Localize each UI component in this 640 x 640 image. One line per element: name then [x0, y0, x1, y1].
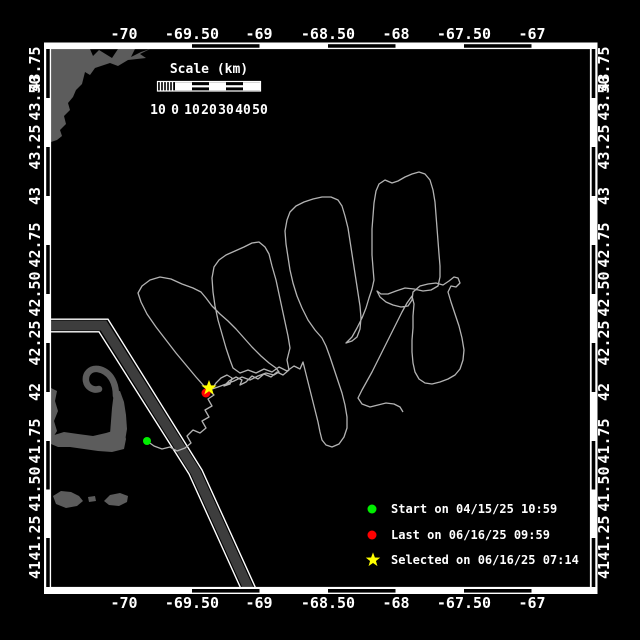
lat-label-right: 42: [595, 383, 613, 401]
lat-label-left: 42.50: [26, 271, 44, 316]
lat-label-left: 43.50: [26, 75, 44, 120]
shipping-lane: [51, 319, 257, 591]
lon-label-top: -69: [245, 25, 272, 43]
lon-label-bottom: -69: [245, 594, 272, 612]
landmass-mainland-strip: [51, 388, 58, 439]
lat-label-left: 43.25: [26, 124, 44, 169]
lon-label-top: -67: [518, 25, 545, 43]
lat-label-left: 42.25: [26, 320, 44, 365]
legend-selected-label: Selected on 06/16/25 07:14: [391, 553, 579, 567]
legend-selected-star-icon: [366, 552, 380, 566]
scale-tick-label: 0: [171, 103, 179, 118]
scale-bar-title: Scale (km): [170, 62, 248, 77]
lat-label-right: 43: [595, 187, 613, 205]
lat-label-left: 41.25: [26, 515, 44, 560]
tracking-map-window: -70 -69.50 -69 -68.50 -68 -67.50 -67 -70…: [0, 0, 640, 640]
lat-label-left: 41.75: [26, 418, 44, 463]
legend-start-dot: [368, 505, 377, 514]
lon-label-bottom: -67.50: [437, 594, 491, 612]
lat-label-left: 42.75: [26, 222, 44, 267]
legend-last-label: Last on 06/16/25 09:59: [391, 528, 550, 542]
shipping-lane-band: [51, 326, 250, 592]
scale-tick-label: 40: [235, 103, 251, 118]
landmass-small-island: [88, 496, 96, 502]
lat-label-left: 41.50: [26, 466, 44, 511]
lon-label-bottom: -69.50: [165, 594, 219, 612]
scale-bar: [158, 82, 261, 92]
start-position-marker[interactable]: [143, 437, 151, 445]
lat-label-right: 43.25: [595, 124, 613, 169]
legend-markers: [366, 505, 380, 567]
lon-label-bottom: -70: [110, 594, 137, 612]
scale-tick-label: 50: [252, 103, 268, 118]
landmass-cape-cod-forearm: [110, 391, 127, 446]
landmass-cape-cod-hook: [86, 369, 116, 396]
scale-tick-label: 20: [201, 103, 217, 118]
scale-tick-label: 10: [184, 103, 200, 118]
vehicle-track-line[interactable]: [138, 172, 464, 451]
shipping-lane-inner-edge: [51, 332, 242, 591]
map-canvas: [0, 0, 640, 640]
lat-label-left: 43: [26, 187, 44, 205]
lat-label-right: 41.75: [595, 418, 613, 463]
legend-start-label: Start on 04/15/25 10:59: [391, 502, 557, 516]
lon-label-top: -67.50: [437, 25, 491, 43]
lat-label-left: 41: [26, 561, 44, 579]
lat-label-left: 42: [26, 383, 44, 401]
scale-tick-label: 10: [150, 103, 166, 118]
landmass-maine-coast: [51, 49, 150, 142]
lat-label-right: 42.75: [595, 222, 613, 267]
lon-label-top: -69.50: [165, 25, 219, 43]
scale-tick-label: 30: [218, 103, 234, 118]
landmass-nantucket: [104, 493, 128, 506]
lat-label-right: 41.25: [595, 515, 613, 560]
lat-label-right: 42.50: [595, 271, 613, 316]
lat-label-right: 41.50: [595, 466, 613, 511]
landmass-group: [51, 49, 150, 508]
lat-label-right: 41: [595, 561, 613, 579]
landmass-marthas-vineyard: [53, 491, 83, 508]
lon-label-top: -68: [382, 25, 409, 43]
lon-label-bottom: -68: [382, 594, 409, 612]
lon-label-bottom: -68.50: [301, 594, 355, 612]
lat-label-right: 42.25: [595, 320, 613, 365]
lon-label-top: -70: [110, 25, 137, 43]
lon-label-bottom: -67: [518, 594, 545, 612]
legend-last-dot: [368, 531, 377, 540]
lon-label-top: -68.50: [301, 25, 355, 43]
lat-label-right: 43.50: [595, 75, 613, 120]
